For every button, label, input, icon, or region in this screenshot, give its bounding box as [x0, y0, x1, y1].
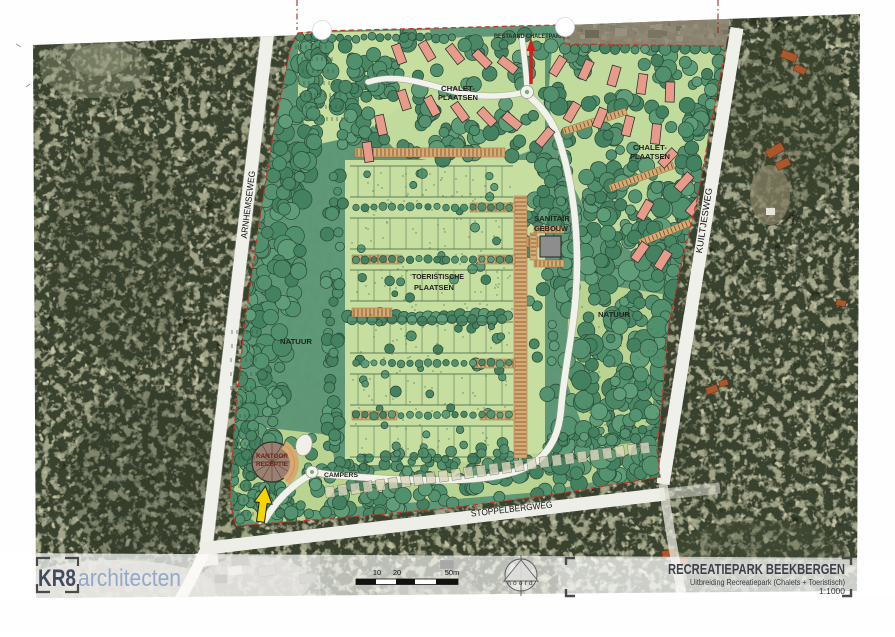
svg-text:10: 10	[373, 568, 381, 577]
svg-text:RECREATIEPARK BEEKBERGEN: RECREATIEPARK BEEKBERGEN	[668, 561, 845, 578]
svg-text:noord: noord	[507, 580, 535, 587]
svg-text:BESTAAND CHALETPARK: BESTAAND CHALETPARK	[494, 34, 565, 40]
svg-text:architecten: architecten	[78, 565, 181, 592]
svg-text:PLAATSEN: PLAATSEN	[438, 95, 478, 102]
svg-text:KANTOOR: KANTOOR	[256, 453, 288, 460]
svg-text:CHALET-: CHALET-	[441, 86, 476, 93]
svg-text:GEBOUW: GEBOUW	[534, 226, 568, 233]
svg-text:CHALET-: CHALET-	[633, 145, 668, 152]
svg-text:KR8: KR8	[38, 565, 76, 592]
svg-text:RECEPTIE: RECEPTIE	[256, 461, 289, 468]
svg-text:1:1000: 1:1000	[819, 586, 845, 596]
svg-text:SANITAIR: SANITAIR	[534, 216, 570, 223]
svg-text:NATUUR: NATUUR	[598, 310, 631, 319]
svg-text:NATUUR: NATUUR	[280, 337, 313, 346]
svg-text:PLAATSEN: PLAATSEN	[414, 283, 454, 292]
svg-text:20: 20	[393, 568, 401, 577]
svg-text:50m: 50m	[445, 568, 460, 577]
svg-text:PLAATSEN: PLAATSEN	[630, 154, 670, 161]
svg-text:TOERISTISCHE: TOERISTISCHE	[412, 272, 464, 281]
svg-text:CAMPERS: CAMPERS	[324, 472, 359, 479]
